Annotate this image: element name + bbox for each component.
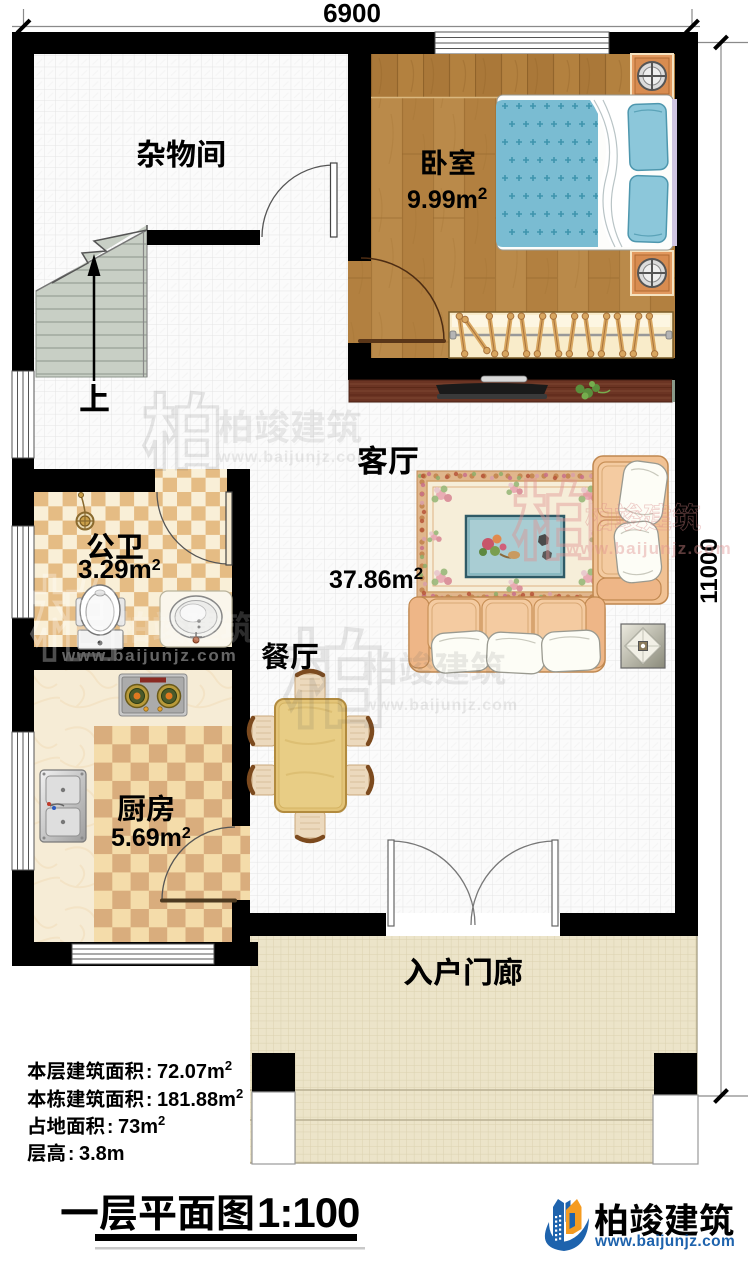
svg-text:3.8m: 3.8m [79, 1143, 125, 1165]
svg-text:www.baijunjz.com: www.baijunjz.com [363, 697, 518, 714]
svg-text::: : [146, 1090, 152, 1111]
svg-text:6900: 6900 [323, 0, 381, 28]
svg-text:9.99m2: 9.99m2 [407, 184, 487, 214]
svg-text:3.29m2: 3.29m2 [78, 554, 161, 584]
svg-text:www.baijunjz.com: www.baijunjz.com [217, 449, 372, 466]
svg-text:5.69m2: 5.69m2 [111, 824, 191, 852]
svg-text:www.baijunjz.com: www.baijunjz.com [594, 1233, 735, 1250]
svg-text:181.88m2: 181.88m2 [157, 1086, 243, 1111]
svg-text:37.86m2: 37.86m2 [329, 564, 423, 594]
svg-text:72.07m2: 72.07m2 [157, 1058, 232, 1083]
svg-text::: : [107, 1117, 113, 1138]
svg-text:www.baijunjz.com: www.baijunjz.com [565, 539, 732, 558]
svg-text::: : [146, 1062, 152, 1083]
svg-text:www.baijunjz.com: www.baijunjz.com [61, 646, 238, 665]
svg-text::: : [68, 1144, 74, 1165]
svg-text:1:100: 1:100 [257, 1189, 359, 1236]
